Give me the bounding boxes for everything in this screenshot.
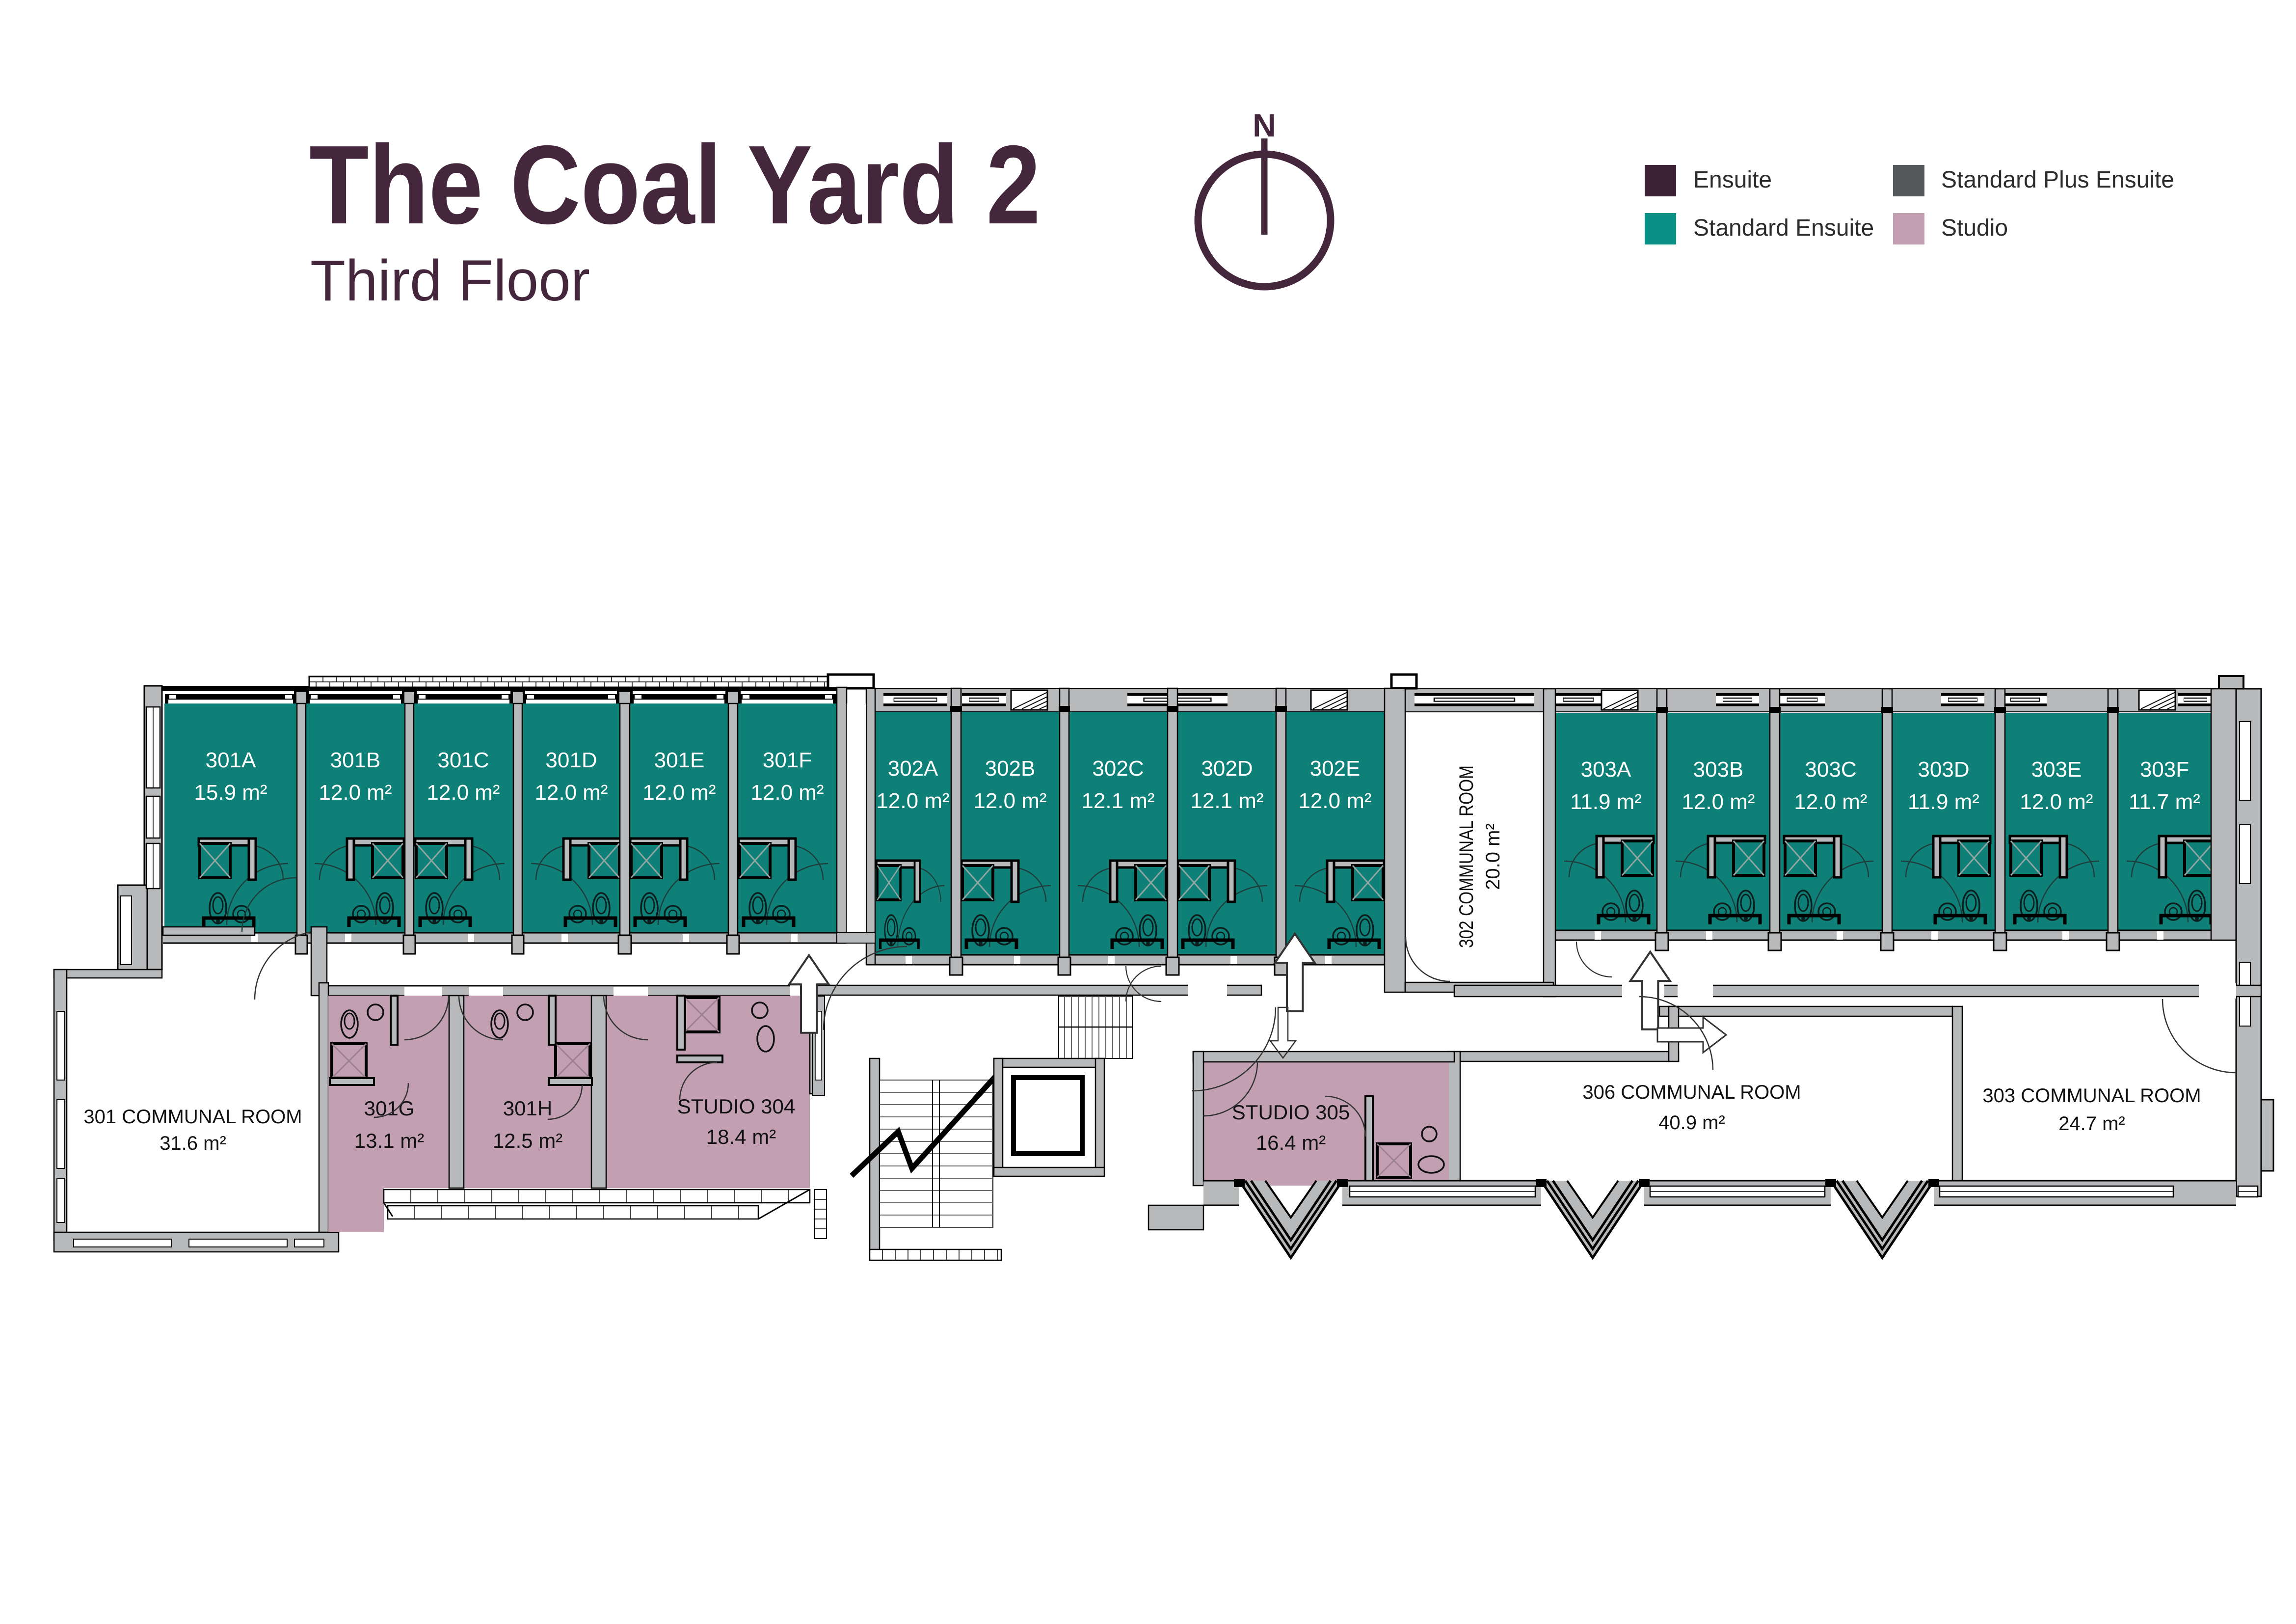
svg-text:303A: 303A [1581, 758, 1631, 782]
svg-text:302 COMMUNAL ROOM: 302 COMMUNAL ROOM [1456, 765, 1477, 948]
svg-text:STUDIO 305: STUDIO 305 [1232, 1101, 1350, 1124]
svg-text:Studio: Studio [1941, 215, 2008, 241]
svg-text:The Coal Yard 2: The Coal Yard 2 [309, 123, 1041, 247]
svg-text:12.0 m²: 12.0 m² [973, 789, 1046, 813]
svg-text:302B: 302B [985, 757, 1036, 781]
svg-text:11.7 m²: 11.7 m² [2129, 790, 2200, 814]
svg-text:301B: 301B [330, 748, 381, 772]
svg-text:303C: 303C [1805, 758, 1856, 782]
svg-text:12.0 m²: 12.0 m² [1682, 790, 1755, 814]
svg-text:12.0 m²: 12.0 m² [1298, 789, 1371, 813]
svg-text:12.0 m²: 12.0 m² [427, 781, 500, 805]
svg-text:18.4 m²: 18.4 m² [706, 1125, 776, 1148]
svg-text:301C: 301C [437, 748, 489, 772]
svg-text:12.1 m²: 12.1 m² [1190, 789, 1263, 813]
svg-text:Third Floor: Third Floor [310, 248, 590, 313]
svg-text:16.4 m²: 16.4 m² [1256, 1131, 1326, 1154]
svg-text:Standard Ensuite: Standard Ensuite [1693, 215, 1874, 241]
svg-text:12.0 m²: 12.0 m² [319, 781, 392, 805]
svg-text:12.0 m²: 12.0 m² [876, 789, 949, 813]
svg-text:301G: 301G [364, 1097, 415, 1120]
svg-text:306 COMMUNAL ROOM: 306 COMMUNAL ROOM [1582, 1082, 1801, 1103]
svg-text:24.7 m²: 24.7 m² [2058, 1113, 2125, 1135]
svg-text:301A: 301A [206, 748, 256, 772]
svg-text:Standard Plus Ensuite: Standard Plus Ensuite [1941, 167, 2174, 193]
svg-text:11.9 m²: 11.9 m² [1570, 790, 1642, 814]
svg-text:302A: 302A [888, 757, 938, 781]
svg-text:11.9 m²: 11.9 m² [1908, 790, 1979, 814]
svg-text:20.0 m²: 20.0 m² [1482, 823, 1504, 890]
svg-text:12.0 m²: 12.0 m² [642, 781, 716, 805]
svg-text:15.9 m²: 15.9 m² [194, 781, 267, 805]
svg-text:Ensuite: Ensuite [1693, 167, 1772, 193]
svg-text:302E: 302E [1310, 757, 1361, 781]
svg-text:12.0 m²: 12.0 m² [750, 781, 824, 805]
svg-text:301F: 301F [763, 748, 812, 772]
svg-text:40.9 m²: 40.9 m² [1658, 1112, 1725, 1134]
svg-text:303F: 303F [2140, 758, 2189, 782]
svg-text:12.0 m²: 12.0 m² [534, 781, 608, 805]
svg-text:13.1 m²: 13.1 m² [354, 1129, 424, 1152]
svg-text:302C: 302C [1092, 757, 1144, 781]
svg-text:302D: 302D [1201, 757, 1253, 781]
svg-text:12.1 m²: 12.1 m² [1081, 789, 1154, 813]
svg-text:12.5 m²: 12.5 m² [493, 1129, 562, 1152]
svg-text:303B: 303B [1693, 758, 1744, 782]
svg-text:STUDIO 304: STUDIO 304 [677, 1095, 795, 1118]
svg-text:12.0 m²: 12.0 m² [2020, 790, 2093, 814]
svg-text:303E: 303E [2031, 758, 2082, 782]
svg-text:303 COMMUNAL ROOM: 303 COMMUNAL ROOM [1982, 1085, 2201, 1107]
svg-text:301D: 301D [545, 748, 597, 772]
svg-text:301H: 301H [503, 1097, 552, 1120]
svg-text:12.0 m²: 12.0 m² [1794, 790, 1867, 814]
svg-text:31.6 m²: 31.6 m² [160, 1133, 226, 1154]
svg-text:N: N [1253, 107, 1276, 143]
svg-text:301E: 301E [654, 748, 705, 772]
svg-text:301 COMMUNAL ROOM: 301 COMMUNAL ROOM [83, 1106, 302, 1128]
svg-text:303D: 303D [1918, 758, 1969, 782]
